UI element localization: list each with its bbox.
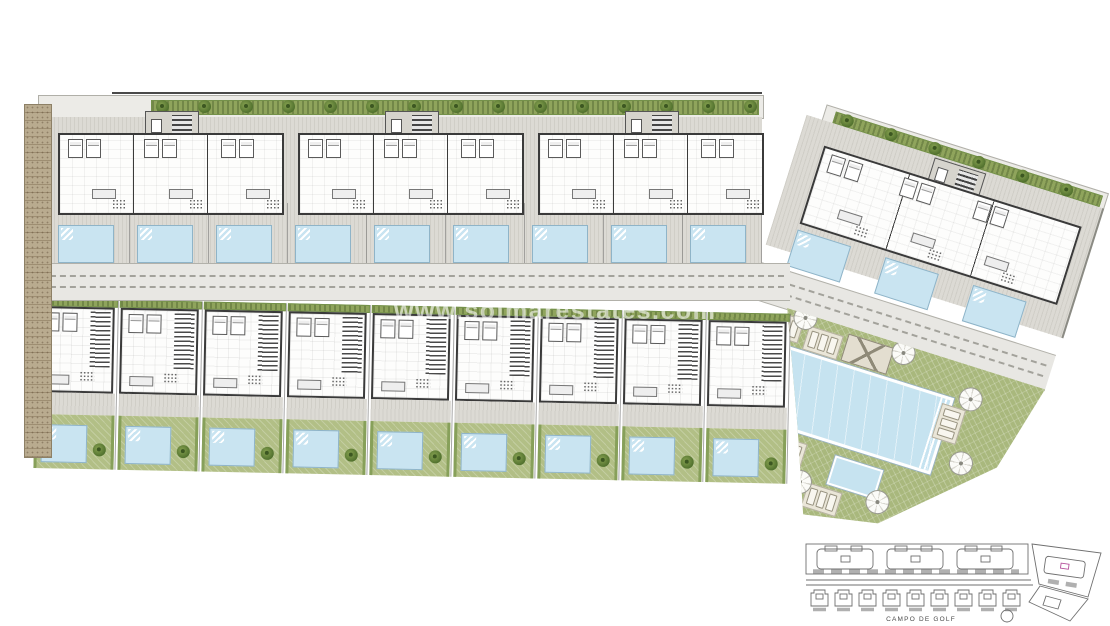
bed-icon	[716, 326, 731, 345]
bed-icon	[212, 316, 227, 335]
townhouse-garden	[537, 425, 618, 481]
tree-icon	[261, 447, 274, 460]
townhouse	[200, 302, 287, 474]
bed-icon	[650, 325, 665, 344]
tree-icon	[744, 100, 757, 113]
tree-icon	[492, 100, 505, 113]
stairs-icon	[425, 318, 446, 374]
bed-icon	[308, 139, 323, 158]
townhouse-floorplan	[371, 313, 451, 401]
townhouse	[536, 309, 623, 481]
bed-icon	[86, 139, 101, 158]
bed-icon	[68, 139, 83, 158]
townhouse-garden	[621, 426, 702, 482]
dining-table-icon	[163, 373, 178, 383]
tree-icon	[93, 443, 106, 456]
bed-icon	[972, 200, 992, 223]
garden-pool	[628, 436, 675, 475]
townhouse-terrace	[454, 401, 534, 425]
garden-pool	[293, 429, 340, 468]
private-pool	[532, 225, 588, 263]
dining-table-icon	[331, 376, 346, 386]
townhouse-garden	[285, 419, 366, 475]
townhouse-terrace	[119, 394, 199, 418]
private-pool	[137, 225, 193, 263]
garden-pool	[712, 438, 759, 477]
bed-icon	[632, 324, 647, 343]
townhouse-floorplan	[455, 315, 535, 403]
dining-table-icon	[667, 383, 682, 393]
sofa-icon	[92, 189, 116, 199]
location-keyplan: CAMPO DE GOLF	[803, 540, 1105, 624]
bed-icon	[843, 160, 863, 183]
townhouse-floorplan	[203, 310, 283, 398]
internal-road	[24, 263, 790, 301]
private-pools-row	[50, 225, 762, 263]
dining-table-icon	[1000, 271, 1017, 285]
bed-icon	[221, 139, 236, 158]
bed-icon	[566, 139, 581, 158]
bed-icon	[296, 317, 311, 336]
private-pool	[216, 225, 272, 263]
stairs-icon	[258, 315, 279, 371]
townhouse-floorplan	[287, 311, 367, 399]
watermark-text: www.solmarestates.com	[394, 297, 716, 326]
stairs-icon	[90, 311, 111, 367]
bed-icon	[402, 139, 417, 158]
tree-icon	[681, 456, 694, 469]
stairs-icon	[174, 313, 195, 369]
townhouse	[452, 307, 539, 479]
garden-pool	[460, 433, 507, 472]
dining-table-icon	[853, 225, 870, 239]
tree-icon	[597, 454, 610, 467]
sofa-icon	[169, 189, 193, 199]
townhouse-garden	[705, 428, 786, 484]
dining-table-icon	[266, 199, 281, 209]
townhouse-floorplan	[623, 318, 703, 406]
bed-icon	[128, 314, 143, 333]
bed-icon	[624, 139, 639, 158]
bed-icon	[719, 139, 734, 158]
townhouse-terrace	[370, 399, 450, 423]
dining-table-icon	[79, 371, 94, 381]
building-floorplan	[58, 133, 284, 215]
tree-icon	[576, 100, 589, 113]
bed-icon	[326, 139, 341, 158]
bed-icon	[701, 139, 716, 158]
street-boundary-line	[112, 92, 762, 94]
private-pool	[611, 225, 667, 263]
bed-icon	[734, 327, 749, 346]
townhouse	[704, 312, 791, 484]
stairs-icon	[761, 325, 782, 381]
townhouse	[116, 300, 203, 472]
private-pool	[453, 225, 509, 263]
townhouse-terrace	[622, 404, 702, 428]
sofa-icon	[409, 189, 433, 199]
sofa-icon	[717, 388, 741, 399]
bed-icon	[62, 313, 77, 332]
keyplan-caption: CAMPO DE GOLF	[886, 616, 956, 623]
dining-table-icon	[112, 199, 127, 209]
sofa-icon	[726, 189, 750, 199]
townhouse-terrace	[287, 397, 367, 421]
townhouse-terrace	[538, 403, 618, 427]
sofa-icon	[549, 385, 573, 396]
sofa-icon	[129, 376, 153, 387]
bed-icon	[916, 183, 936, 206]
tree-icon	[429, 450, 442, 463]
townhouse-garden	[201, 418, 282, 474]
garden-pool	[125, 426, 172, 465]
road-marking	[30, 275, 784, 277]
stairs-icon	[677, 323, 698, 379]
building-floorplan	[298, 133, 524, 215]
townhouse-floorplan	[707, 320, 787, 408]
sofa-icon	[572, 189, 596, 199]
dining-table-icon	[669, 199, 684, 209]
tree-icon	[765, 457, 778, 470]
private-pool	[58, 225, 114, 263]
dining-table-icon	[189, 199, 204, 209]
townhouse-floorplan	[539, 317, 619, 405]
stairs-icon	[509, 320, 530, 376]
apartment-building	[298, 119, 524, 219]
sofa-icon	[649, 189, 673, 199]
bed-icon	[548, 139, 563, 158]
bed-icon	[989, 206, 1009, 229]
keyplan-east-parcel	[1032, 544, 1101, 597]
keyplan-roundabout	[1001, 610, 1013, 622]
bed-icon	[566, 323, 581, 342]
stairs-icon	[342, 316, 363, 372]
dining-table-icon	[926, 248, 943, 262]
parasol-icon	[946, 448, 976, 478]
tree-icon	[450, 100, 463, 113]
tree-icon	[345, 449, 358, 462]
bed-icon	[144, 139, 159, 158]
apartment-building	[58, 119, 284, 219]
sofa-icon	[837, 209, 863, 226]
bed-icon	[384, 139, 399, 158]
dining-table-icon	[429, 199, 444, 209]
townhouse	[368, 305, 455, 477]
dining-table-icon	[247, 374, 262, 384]
bed-icon	[826, 154, 846, 177]
bed-icon	[899, 177, 919, 200]
tree-icon	[240, 100, 253, 113]
road-marking	[30, 286, 784, 288]
bed-icon	[479, 139, 494, 158]
dining-table-icon	[352, 199, 367, 209]
tree-icon	[198, 100, 211, 113]
keyplan-pool-parcel	[1029, 586, 1088, 621]
bed-icon	[239, 139, 254, 158]
sofa-icon	[213, 378, 237, 389]
sofa-icon	[984, 256, 1010, 273]
apartment-building	[538, 119, 764, 219]
townhouse-floorplan	[119, 308, 199, 396]
apartments-row	[50, 117, 762, 263]
private-pool	[690, 225, 746, 263]
garden-pool	[376, 431, 423, 470]
private-pool	[295, 225, 351, 263]
site-plan-canvas: www.solmarestates.com	[0, 0, 1110, 626]
bed-icon	[146, 314, 161, 333]
dining-table-icon	[506, 199, 521, 209]
tree-icon	[513, 452, 526, 465]
building-floorplan	[538, 133, 764, 215]
dining-table-icon	[592, 199, 607, 209]
tree-icon	[324, 100, 337, 113]
bed-icon	[461, 139, 476, 158]
side-path-strip	[24, 104, 52, 458]
bed-icon	[642, 139, 657, 158]
townhouse-terrace	[203, 396, 283, 420]
dining-table-icon	[499, 380, 514, 390]
townhouse	[620, 310, 707, 482]
sofa-icon	[381, 381, 405, 392]
apartment-buildings	[50, 119, 762, 223]
tree-icon	[282, 100, 295, 113]
townhouse-garden	[453, 423, 534, 479]
private-pool	[374, 225, 430, 263]
stairs-icon	[593, 322, 614, 378]
townhouse-garden	[117, 416, 198, 472]
sofa-icon	[297, 379, 321, 390]
townhouse	[284, 303, 371, 475]
tree-icon	[702, 100, 715, 113]
sofa-icon	[486, 189, 510, 199]
tree-icon	[534, 100, 547, 113]
garden-pool	[544, 435, 591, 474]
tree-icon	[177, 445, 190, 458]
sofa-icon	[633, 387, 657, 398]
dining-table-icon	[583, 381, 598, 391]
bed-icon	[230, 316, 245, 335]
sofa-icon	[332, 189, 356, 199]
bed-icon	[314, 318, 329, 337]
dining-table-icon	[415, 378, 430, 388]
tree-icon	[366, 100, 379, 113]
dining-table-icon	[746, 199, 761, 209]
sofa-icon	[465, 383, 489, 394]
bed-icon	[162, 139, 177, 158]
dining-table-icon	[751, 385, 766, 395]
sofa-icon	[246, 189, 270, 199]
townhouse-terrace	[706, 406, 786, 430]
garden-pool	[209, 428, 256, 467]
sofa-icon	[910, 232, 936, 249]
townhouse-garden	[369, 421, 450, 477]
